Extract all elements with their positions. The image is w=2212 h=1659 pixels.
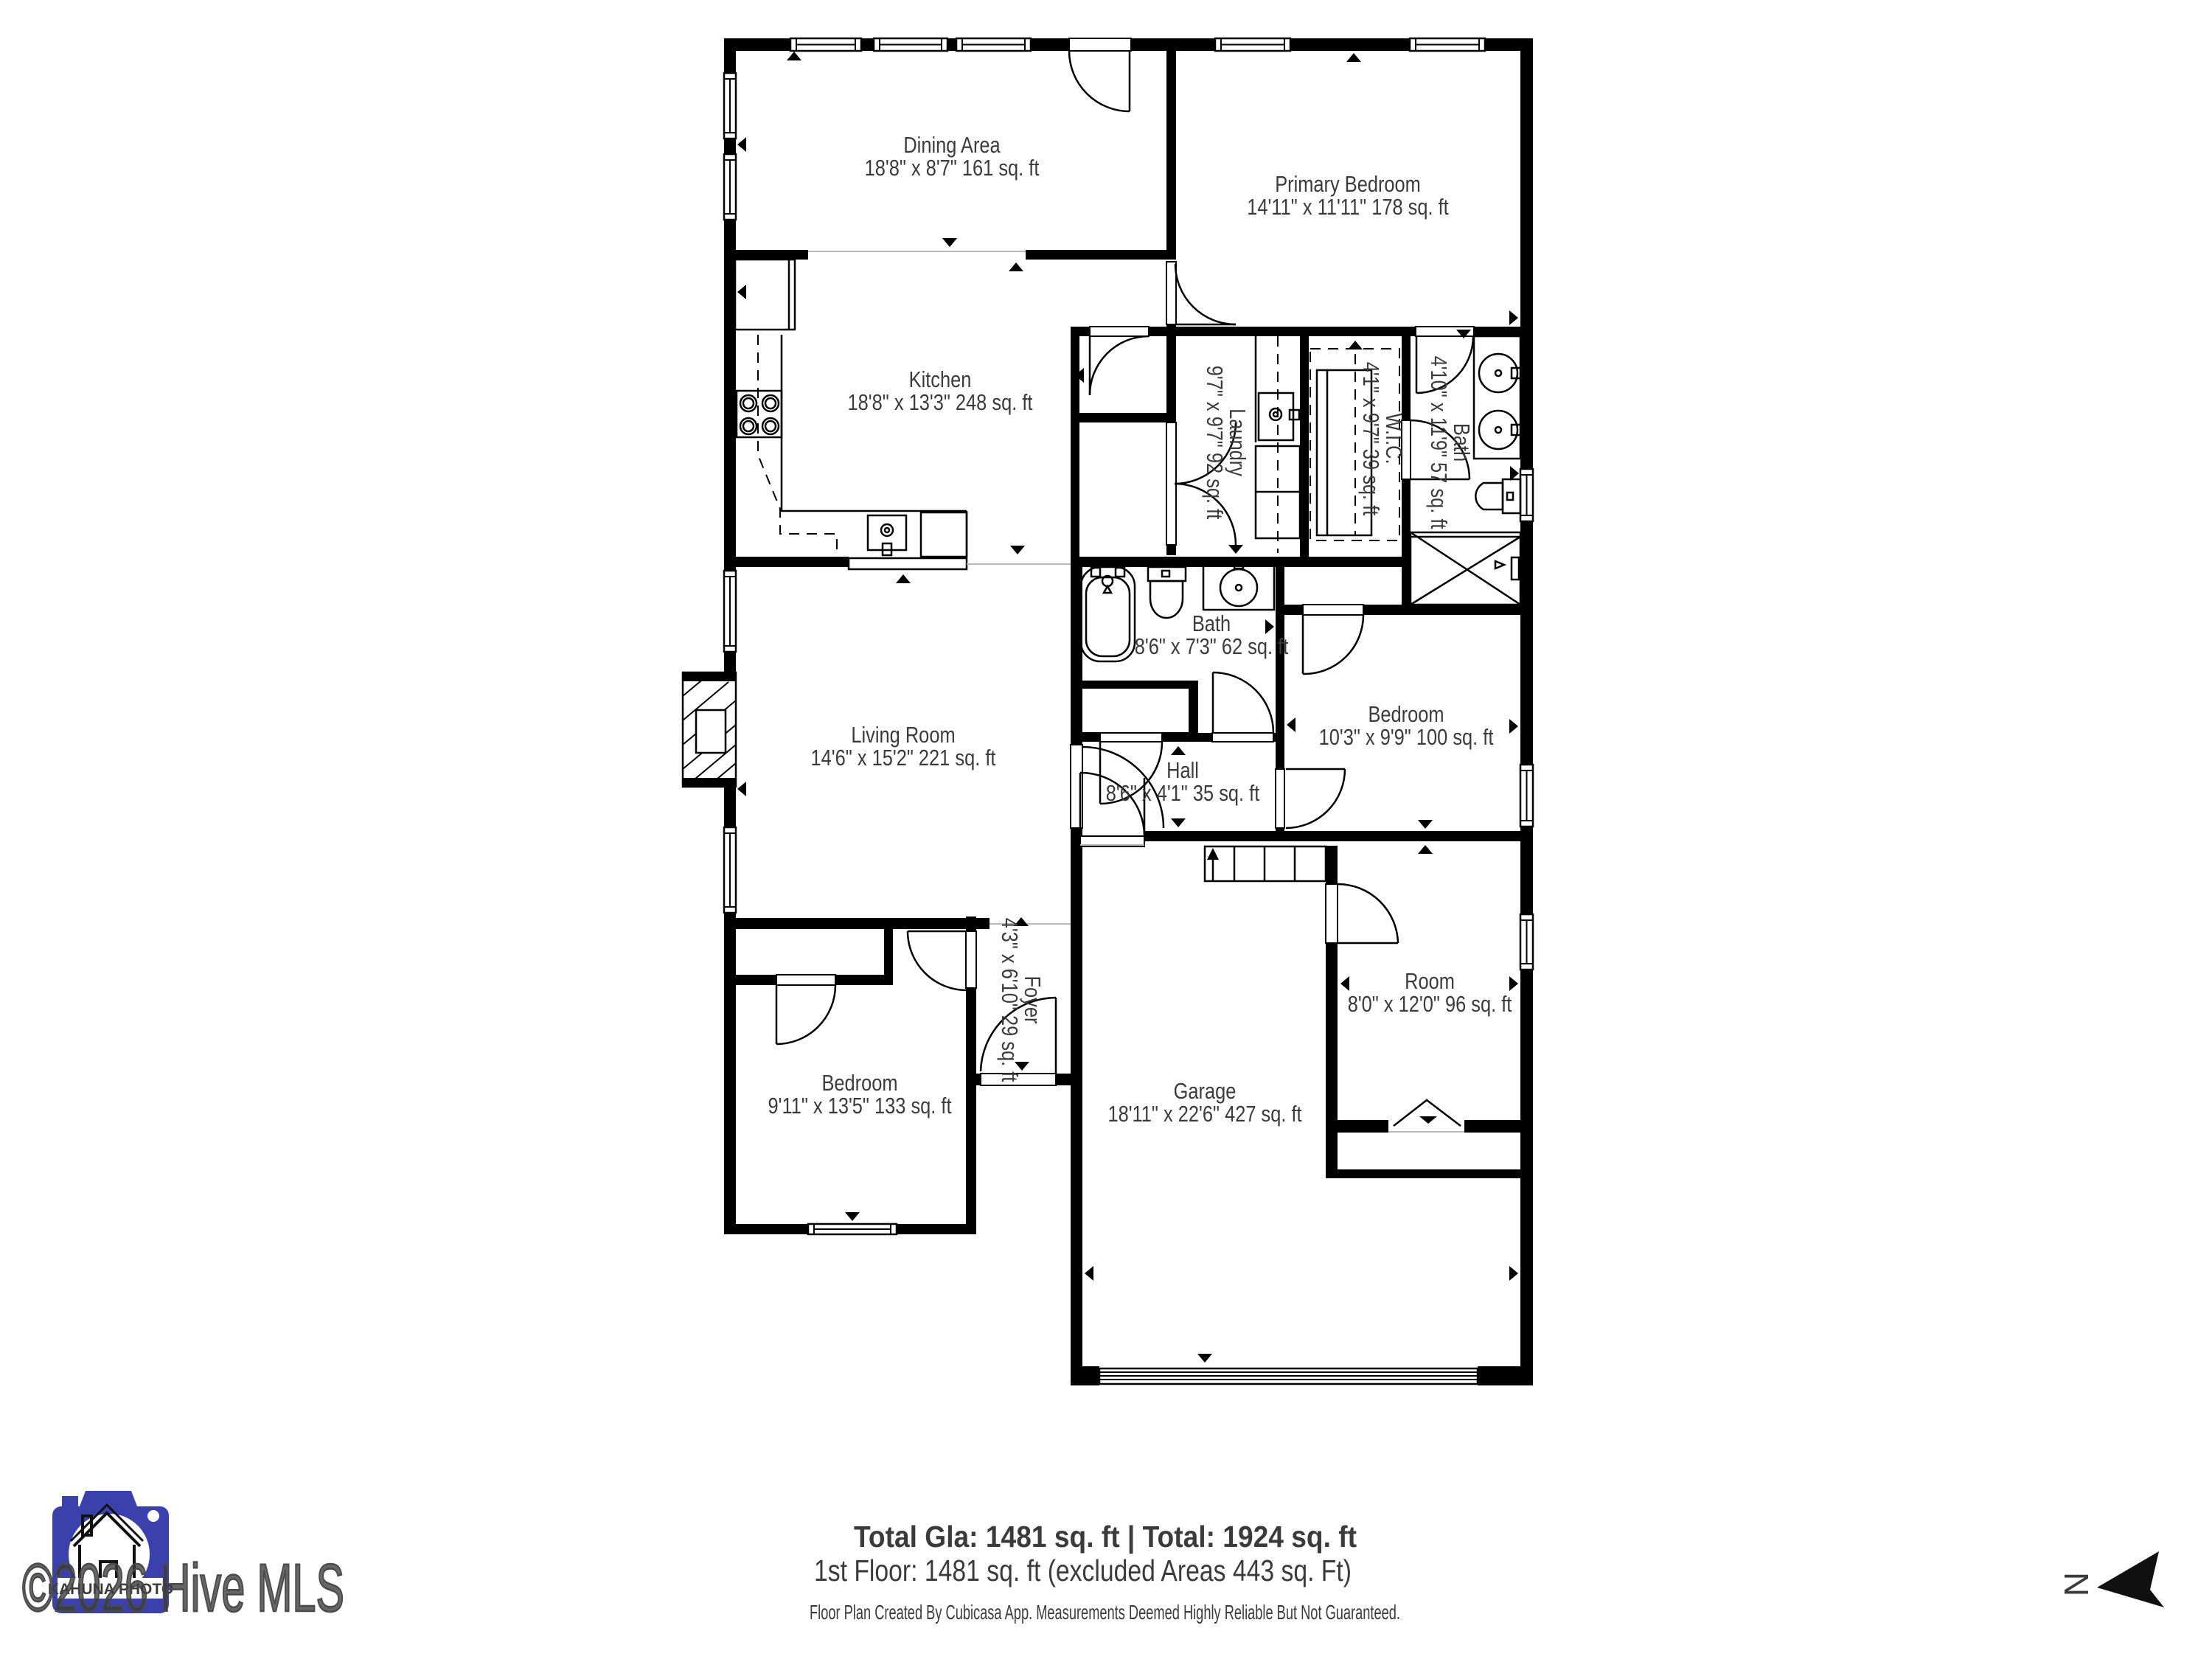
svg-text:Total Gla: 1481 sq. ft | Total: Total Gla: 1481 sq. ft | Total: 1924 sq.… [854,1520,1357,1554]
svg-text:4'3" x 6'10" 29 sq. ft: 4'3" x 6'10" 29 sq. ft [996,918,1022,1082]
svg-text:W.I.C.: W.I.C. [1380,413,1406,464]
svg-text:9'7" x 9'7" 92 sq. ft: 9'7" x 9'7" 92 sq. ft [1201,366,1227,520]
svg-text:©2026 Hive MLS: ©2026 Hive MLS [22,1551,344,1626]
svg-text:Floor Plan Created By Cubicasa: Floor Plan Created By Cubicasa App. Meas… [810,1601,1400,1624]
svg-text:Bath: Bath [1448,423,1474,462]
svg-text:9'11" x 13'5" 133 sq. ft: 9'11" x 13'5" 133 sq. ft [768,1093,952,1119]
svg-text:Bath: Bath [1192,611,1231,637]
svg-text:Foyer: Foyer [1019,976,1045,1024]
svg-text:Dining Area: Dining Area [903,133,1001,159]
svg-text:18'11" x 22'6" 427 sq. ft: 18'11" x 22'6" 427 sq. ft [1107,1102,1301,1127]
svg-text:Living Room: Living Room [851,723,955,748]
svg-text:8'6" x 7'3" 62 sq. ft: 8'6" x 7'3" 62 sq. ft [1135,634,1289,660]
svg-text:Kitchen: Kitchen [909,367,972,393]
svg-text:14'6" x 15'2" 221 sq. ft: 14'6" x 15'2" 221 sq. ft [811,745,996,771]
svg-text:10'3" x 9'9" 100 sq. ft: 10'3" x 9'9" 100 sq. ft [1319,725,1494,751]
svg-text:14'11" x 11'11" 178 sq. ft: 14'11" x 11'11" 178 sq. ft [1247,195,1449,220]
svg-text:18'8" x 13'3" 248 sq. ft: 18'8" x 13'3" 248 sq. ft [848,390,1033,416]
svg-text:8'0" x 12'0" 96 sq. ft: 8'0" x 12'0" 96 sq. ft [1348,992,1512,1018]
svg-text:4'10" x 11'9" 57 sq. ft: 4'10" x 11'9" 57 sq. ft [1425,356,1451,529]
svg-text:Primary Bedroom: Primary Bedroom [1275,172,1421,198]
svg-text:8'6" x 4'1" 35 sq. ft: 8'6" x 4'1" 35 sq. ft [1106,781,1260,807]
svg-text:Garage: Garage [1174,1079,1237,1105]
svg-text:N: N [2057,1572,2096,1596]
svg-text:Laundry: Laundry [1224,408,1250,477]
svg-text:4'1" x 9'7" 39 sq. ft: 4'1" x 9'7" 39 sq. ft [1357,362,1383,516]
svg-text:1st Floor: 1481 sq. ft (exclud: 1st Floor: 1481 sq. ft (excluded Areas 4… [814,1554,1352,1587]
svg-text:Bedroom: Bedroom [1368,702,1444,728]
svg-text:Room: Room [1405,969,1455,995]
svg-text:18'8" x 8'7" 161 sq. ft: 18'8" x 8'7" 161 sq. ft [865,156,1040,181]
svg-text:Bedroom: Bedroom [821,1071,897,1096]
svg-text:Hall: Hall [1166,758,1199,784]
